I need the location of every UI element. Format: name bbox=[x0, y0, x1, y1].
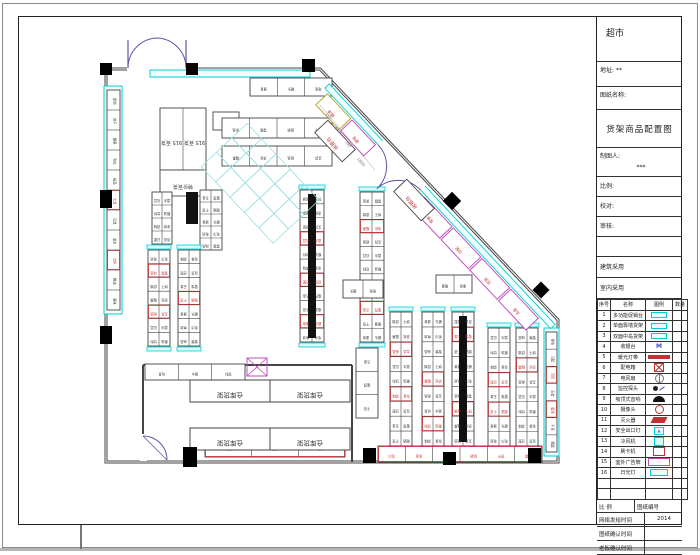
shelf-cell-label: 罐头 bbox=[465, 364, 472, 369]
shelf-cell-label: 毛巾 bbox=[161, 257, 167, 262]
shelf-cell-label: 饼干 bbox=[113, 118, 118, 125]
legend-cell bbox=[646, 331, 673, 342]
structural-column bbox=[100, 63, 112, 75]
legend-row: 9吸顶式音响 bbox=[598, 394, 688, 405]
floor-grid-cell bbox=[274, 199, 304, 229]
shelf-cell-label: 百货 bbox=[403, 409, 409, 414]
floor-grid-cell bbox=[230, 183, 260, 213]
shelf-cell-label: 促销 bbox=[113, 98, 118, 105]
shelf-cell-label: 百货 bbox=[501, 380, 507, 385]
shelf-cell-label: 日配 bbox=[180, 271, 187, 276]
legend-cell bbox=[598, 489, 611, 500]
legend-cell bbox=[673, 321, 688, 332]
shelf-cell-label: 蜜饯 bbox=[363, 383, 370, 388]
audit-field: 审核: bbox=[597, 217, 682, 237]
structural-column bbox=[443, 452, 456, 465]
floor-grid-cell bbox=[245, 168, 275, 198]
shelf-cell-label: 粮油 bbox=[164, 212, 170, 217]
shelf-cell-label: 雪糕 bbox=[259, 128, 266, 133]
shelf-cell-label: 饮料 bbox=[490, 350, 497, 355]
shelf-cell-label: 蜜饯 bbox=[551, 407, 556, 414]
shelf-cell-label: 饮料 bbox=[302, 252, 309, 257]
shelf-cell-label: 饼干 bbox=[465, 409, 472, 414]
legend-row bbox=[598, 478, 688, 489]
shelf-cell-label: 文具 bbox=[374, 240, 381, 245]
legend-cell bbox=[646, 478, 673, 489]
shelf-cell-label: 烟酒 bbox=[551, 441, 556, 448]
shelf-cell-label: 五金 bbox=[180, 284, 187, 289]
title-block: 超市 地址: ** 图纸名称: 货架商品配置图 制图人: *** 比例: 校对:… bbox=[596, 16, 682, 525]
shelf-cell-label: 电池 bbox=[314, 87, 321, 92]
shelf-cell-label: 调味 bbox=[302, 266, 309, 271]
end-cap bbox=[177, 347, 201, 351]
legend-cell: 双面中岛货架 bbox=[611, 331, 646, 342]
shelf-cell-label: 速食 bbox=[180, 312, 187, 317]
shelf-run: 糖果洗化纸品文具 bbox=[222, 146, 332, 166]
shelf-cell-label: 文具 bbox=[161, 312, 168, 317]
legend-cell: 13 bbox=[598, 436, 611, 447]
shelf-cell-label: 调味 bbox=[153, 225, 160, 230]
shelf-cell-label: 玩具 bbox=[153, 199, 160, 204]
shelf-cell-label: 玩具 bbox=[392, 364, 399, 369]
footer-cell bbox=[645, 527, 682, 540]
end-cap bbox=[299, 343, 325, 347]
shelf-cell-label: 毛巾 bbox=[191, 326, 197, 331]
legend-cell: M bbox=[646, 342, 673, 353]
legend-cell: 安全出口灯 bbox=[611, 426, 646, 437]
shelf-cell-label: 纸品 bbox=[288, 156, 294, 161]
shelf-cell-label: 酒水 bbox=[163, 199, 170, 204]
shelf-cell-label: 五金 bbox=[490, 395, 497, 400]
shelf-cell-label: 洗化 bbox=[403, 335, 410, 340]
legend-row: 16日光灯 bbox=[598, 468, 688, 479]
shelf-cell-label: 糖果 bbox=[232, 156, 239, 161]
shelf-cell-label: 电池 bbox=[369, 289, 376, 294]
shelf-cell-label: 百货 bbox=[465, 320, 471, 325]
legend-cell bbox=[673, 405, 688, 416]
shelf-cell-label: 玩具 bbox=[518, 395, 525, 400]
legend-cell: 配电箱 bbox=[611, 363, 646, 374]
shelf-cell-label: 促销 bbox=[454, 409, 461, 414]
storage-label: 仓库货架 bbox=[297, 391, 324, 400]
storage-label: 仓库货架 bbox=[217, 391, 244, 400]
legend-cell bbox=[611, 489, 646, 500]
end-cap bbox=[299, 185, 325, 189]
wall-unit bbox=[186, 192, 198, 224]
shelf-cell-label: 电池 bbox=[202, 232, 209, 237]
shelf-cell-label: 电池 bbox=[302, 335, 309, 340]
shelf-run-outline bbox=[145, 364, 245, 380]
shelf-cell-label: 速食 bbox=[362, 335, 369, 340]
legend-cell: 16 bbox=[598, 468, 611, 479]
legend-cell bbox=[673, 363, 688, 374]
shelf-run: 五金蜜饯干货烟酒速食罐头电池毛巾床品雪糕 bbox=[200, 190, 222, 250]
island-label: 特价百货 bbox=[173, 183, 193, 190]
shelf-cell-label: 促销 bbox=[424, 364, 431, 369]
shelf-cell-label: 五金 bbox=[392, 424, 399, 429]
shelf-cell-label: 烟酒 bbox=[441, 284, 448, 289]
shelf-run: 调味零食日配百货五金蜜饯干货烟酒速食罐头电池毛巾床品雪糕 bbox=[177, 245, 201, 351]
legend-cell bbox=[673, 436, 688, 447]
legend-cell: 8 bbox=[598, 384, 611, 395]
shelf-cell-label: 速食 bbox=[490, 424, 497, 429]
shelf-cell-label: 电池 bbox=[490, 439, 497, 444]
shelf-cell-label: 促销 bbox=[287, 128, 294, 133]
shelf-run: 罐头电池 bbox=[343, 280, 383, 298]
shelf-cell-label: 酒水 bbox=[403, 364, 410, 369]
shelf-cell-label: 干货 bbox=[551, 424, 556, 430]
shelf-cell-label: 烟酒 bbox=[213, 208, 220, 213]
shelf-cell-label: 促销 bbox=[150, 284, 157, 289]
legend-row: 2单面靠墙货架 bbox=[598, 321, 688, 332]
shelf-cell-label: 文具 bbox=[435, 394, 442, 399]
legend-cell: 摄像头 bbox=[611, 405, 646, 416]
floor-grid-cell bbox=[244, 198, 274, 228]
shelf-cell-label: 调味 bbox=[490, 365, 497, 370]
shelf-cell-label: 电池 bbox=[424, 335, 431, 340]
shelf-cell-label: 调味 bbox=[113, 298, 118, 305]
shelf-run: 玩具酒水饮料粮油调味零食日配百货五金蜜饯干货烟酒速食罐头电池毛巾 bbox=[487, 323, 511, 451]
legend-cell: 电风扇 bbox=[611, 373, 646, 384]
shelf-cell-label: 雪糕 bbox=[465, 394, 472, 399]
legend-cell bbox=[646, 363, 673, 374]
shelf-cell-label: 蜜饯 bbox=[403, 424, 410, 429]
legend-header-cell: 名称 bbox=[611, 300, 646, 311]
storage-label: 仓库货架 bbox=[217, 439, 244, 448]
shelf-cell-label: 饮料 bbox=[153, 212, 160, 217]
structural-column bbox=[100, 326, 112, 344]
legend-cell: 15 bbox=[598, 457, 611, 468]
legend-cell bbox=[646, 373, 673, 384]
shelf-cell-label: 玩具 bbox=[490, 336, 497, 341]
shelf-cell-label: 干货 bbox=[364, 407, 370, 412]
footer-row: 网络发给时间2014 bbox=[597, 513, 682, 527]
shelf-cell-label: 粮油 bbox=[435, 424, 441, 429]
shelf-cell-label: 酒水 bbox=[113, 238, 118, 245]
shelf-cell-label: 饼干 bbox=[374, 213, 381, 218]
shelf-cell-label: 促销 bbox=[392, 320, 399, 325]
shelf-cell-label: 五金 bbox=[551, 390, 556, 397]
shelf-cell-label: 纸品 bbox=[424, 394, 430, 399]
shelf-cell-label: 玩具 bbox=[158, 372, 165, 377]
shelf-cell-label: 五金 bbox=[302, 294, 309, 299]
shelf-cell-label: 蜜饯 bbox=[501, 395, 508, 400]
legend-cell bbox=[646, 394, 673, 405]
legend-cell bbox=[673, 394, 688, 405]
shelf-cell-label: 饼干 bbox=[403, 320, 410, 325]
shelf-cell-label: 烟酒 bbox=[501, 409, 508, 414]
drafter-value: *** bbox=[600, 164, 682, 171]
shelf-cell-label: 烟酒 bbox=[465, 349, 472, 354]
shelf-cell-label: 糖果 bbox=[454, 424, 461, 429]
shelf-cell-label: 罐头 bbox=[191, 312, 198, 317]
shelf-cell-label: 日配 bbox=[518, 439, 525, 444]
legend-cell: 日光灯 bbox=[611, 468, 646, 479]
shelf-cell-label: 洗化 bbox=[259, 156, 266, 161]
shelf-cell-label: 酒水 bbox=[435, 409, 442, 414]
legend-row bbox=[598, 489, 688, 500]
shelf-cell-label: 文具 bbox=[314, 225, 321, 230]
shelf-cell-label: 日配 bbox=[302, 280, 309, 285]
end-cap bbox=[389, 307, 413, 311]
shelf-cell-label: 糖果 bbox=[150, 298, 157, 303]
end-cap bbox=[147, 245, 171, 249]
shelf-cell-label: 百货 bbox=[164, 238, 170, 243]
shelf-run: 速食罐头电池 bbox=[250, 78, 332, 96]
blank-field bbox=[597, 237, 682, 257]
shelf-cell-label: 床品 bbox=[454, 394, 460, 399]
door-opening bbox=[140, 434, 147, 461]
shelf-cell-label: 零食 bbox=[403, 394, 410, 399]
shelf-cell-label: 速食 bbox=[459, 284, 466, 289]
shelf-cell-label: 促销 bbox=[518, 350, 525, 355]
shelf-cell-label: 雪糕 bbox=[435, 349, 442, 354]
floor-grid-cell bbox=[259, 213, 289, 243]
end-cap bbox=[421, 307, 445, 311]
shelf-cell-label: 纸品 bbox=[113, 178, 118, 184]
shelf-cell-label: 床品 bbox=[424, 349, 430, 354]
legend-cell: 吸顶式音响 bbox=[611, 394, 646, 405]
shelf-cell-label: 速食 bbox=[302, 321, 309, 326]
shelf-cell-label: 饮料 bbox=[224, 372, 231, 377]
legend-cell bbox=[673, 415, 688, 426]
shelf-cell-label: 纸品 bbox=[363, 240, 369, 245]
shelf-cell-label: 雪糕 bbox=[529, 336, 536, 341]
legend-cell: ▲ bbox=[646, 426, 673, 437]
shelf-cell-label: 蜜饯 bbox=[465, 335, 472, 340]
footer-row: 老板确认时间 bbox=[597, 541, 682, 555]
footer-cell: 网络发给时间 bbox=[597, 513, 645, 526]
shelf-cell-label: 糖果 bbox=[518, 365, 525, 370]
structural-column bbox=[302, 59, 315, 72]
shelf-cell-label: 酒水 bbox=[161, 326, 168, 331]
shelf-cell-label: 雪糕 bbox=[374, 199, 381, 204]
structural-column bbox=[183, 447, 197, 467]
scale-field: 比例: bbox=[597, 177, 682, 197]
shelf-cell-label: 罐头 bbox=[501, 424, 508, 429]
shelf-cell-label: 洗化 bbox=[113, 158, 118, 165]
shelf-cell-label: 零食 bbox=[191, 257, 198, 262]
shelf-cell-label: 酒水 bbox=[501, 336, 508, 341]
shelf-cell-label: 糖果 bbox=[424, 379, 431, 384]
footer-cell: 图纸确认时间 bbox=[597, 527, 645, 540]
legend-cell bbox=[646, 489, 673, 500]
legend-row: 15室外广告牌∷∷ bbox=[598, 457, 688, 468]
shelf-cell-label: 电池 bbox=[150, 257, 157, 262]
legend-cell: 收银台 bbox=[611, 342, 646, 353]
legend-header-cell: 序号 bbox=[598, 300, 611, 311]
shelf-run: 床品雪糕促销饼干糖果洗化纸品文具玩具酒水饮料粮油调味零食日配百货 bbox=[515, 323, 539, 451]
shelf-cell-label: 床品 bbox=[202, 244, 208, 249]
shelf-cell-label: 日配 bbox=[454, 320, 461, 325]
shelf-cell-label: 促销 bbox=[470, 454, 477, 459]
shelf-cell-label: 毛巾 bbox=[465, 379, 471, 384]
legend-cell bbox=[673, 352, 688, 363]
shelf-run: 床品雪糕促销饼干 bbox=[222, 118, 332, 138]
shelf-cell-label: 零食 bbox=[163, 225, 170, 230]
shelf-cell-label: 粮油 bbox=[529, 409, 535, 414]
shelf-cell-label: 雪糕 bbox=[161, 271, 168, 276]
shelf-cell-label: 百货 bbox=[191, 271, 197, 276]
end-cap bbox=[359, 343, 385, 347]
shelf-run: 玩具酒水饮料粮油调味零食日配百货 bbox=[152, 192, 172, 244]
legend-cell bbox=[673, 447, 688, 458]
shelf-cell-label: 玩具 bbox=[302, 239, 309, 244]
shelf-cell-label: 饮料 bbox=[518, 409, 525, 414]
legend-cell: 4 bbox=[598, 342, 611, 353]
shelf-cell-label: 调味 bbox=[392, 394, 399, 399]
legend-cell bbox=[646, 405, 673, 416]
shelf-cell-label: 调味 bbox=[424, 439, 431, 444]
shelf-run: 电池毛巾床品雪糕促销饼干糖果洗化纸品文具玩具酒水饮料粮油 bbox=[147, 245, 171, 351]
storage-label: 仓库货架 bbox=[297, 439, 324, 448]
shelf-cell-label: 纸品 bbox=[150, 312, 156, 317]
shelf-cell-label: 毛巾 bbox=[315, 335, 321, 340]
shelf-cell-label: 罐头 bbox=[374, 335, 381, 340]
legend-cell: 7 bbox=[598, 373, 611, 384]
structural-column bbox=[186, 63, 198, 75]
legend-cell: 3 bbox=[598, 331, 611, 342]
structural-column bbox=[528, 448, 541, 463]
legend-row: 14刷卡机 bbox=[598, 447, 688, 458]
shelf-cell-label: 蜜饯 bbox=[191, 284, 198, 289]
shelf-cell-label: 雪糕 bbox=[213, 244, 220, 249]
shelf-cell-label: 粮油 bbox=[161, 339, 167, 344]
shelf-cell-label: 罐头 bbox=[314, 321, 321, 326]
legend-cell bbox=[673, 478, 688, 489]
legend-row: 11灭火器 bbox=[598, 415, 688, 426]
floor-plan: 促销饼干糖果洗化纸品文具玩具酒水饮料粮油调味零食日配百货五金蜜饯干货烟酒915 … bbox=[0, 0, 700, 555]
shelf-cell-label: 床品 bbox=[518, 336, 524, 341]
shelf-cell-label: 蜜饯 bbox=[374, 308, 381, 313]
shelf-cell-label: 日配 bbox=[490, 380, 497, 385]
legend-cell bbox=[673, 468, 688, 479]
shelf-run: 五金蜜饯干货 bbox=[356, 348, 378, 418]
legend-row: 7电风扇 bbox=[598, 373, 688, 384]
footer-number-label: 图纸编号 bbox=[635, 500, 682, 512]
wall-shelf-band bbox=[150, 70, 310, 77]
shelf-run: 毛巾床品雪糕促销饼干糖果 bbox=[378, 446, 542, 462]
legend-cell: 2 bbox=[598, 321, 611, 332]
shelf-cell-label: 调味 bbox=[180, 257, 187, 262]
footer-scale-label: 比 例 bbox=[597, 500, 635, 512]
footer-cell: 2014 bbox=[645, 513, 682, 526]
shelf-cell-label: 粮油 bbox=[403, 379, 409, 384]
legend-header-cell: 数量 bbox=[673, 300, 688, 311]
shelf-cell-label: 五金 bbox=[202, 196, 209, 201]
legend-cell bbox=[646, 436, 673, 447]
shelf-cell-label: 促销 bbox=[302, 197, 309, 202]
shelf-cell-label: 玩具 bbox=[362, 254, 369, 259]
legend-cell bbox=[673, 373, 688, 384]
legend-cell bbox=[673, 426, 688, 437]
legend-row: 8监控探头 bbox=[598, 384, 688, 395]
legend-cell: 灭火器 bbox=[611, 415, 646, 426]
shelf-cell-label: 文具 bbox=[465, 439, 472, 444]
island-label: 915 百货 bbox=[161, 139, 182, 146]
shelf-cell-label: 百货 bbox=[529, 439, 535, 444]
shelf-cell-label: 速食 bbox=[424, 320, 431, 325]
shelf-run: 速食罐头电池毛巾床品雪糕促销饼干糖果洗化纸品文具玩具酒水饮料粮油调味零食 bbox=[421, 307, 445, 451]
shelf-cell-label: 饮料 bbox=[362, 267, 369, 272]
footer-cell bbox=[645, 541, 682, 554]
shelf-cell-label: 文具 bbox=[529, 380, 536, 385]
shelf-run: 915 百货915 百货 bbox=[160, 108, 206, 170]
shelf-cell-label: 洗化 bbox=[314, 211, 321, 216]
interior-use-field: 室内采用 bbox=[597, 278, 682, 299]
shelf-cell-label: 文具 bbox=[113, 198, 118, 205]
legend-cell bbox=[598, 478, 611, 489]
shelf-cell-label: 纸品 bbox=[454, 439, 460, 444]
shelf-cell-label: 饮料 bbox=[150, 339, 157, 344]
shelf-cell-label: 饮料 bbox=[113, 258, 118, 265]
legend-cell: 冷风机 bbox=[611, 436, 646, 447]
shelf-cell-label: 糖果 bbox=[392, 335, 399, 340]
shelf-cell-label: 毛巾 bbox=[213, 232, 219, 237]
shelf-cell-label: 毛巾 bbox=[435, 335, 441, 340]
shelf-cell-label: 罐头 bbox=[287, 87, 294, 92]
legend-cell bbox=[673, 331, 688, 342]
shelf-cell-label: 洗化 bbox=[374, 226, 381, 231]
shelf-cell-label: 毛巾 bbox=[501, 439, 507, 444]
shelf-cell-label: 纸品 bbox=[303, 225, 309, 230]
shelf-cell-label: 速食 bbox=[202, 220, 209, 225]
end-cap bbox=[177, 245, 201, 249]
structural-column bbox=[100, 190, 112, 208]
shelf-cell-label: 纸品 bbox=[392, 349, 398, 354]
legend-cell bbox=[673, 342, 688, 353]
legend-cell bbox=[646, 352, 673, 363]
end-cap bbox=[359, 187, 385, 191]
shelf-run: 玩具酒水饮料 bbox=[145, 364, 245, 380]
shelf-cell-label: 粮油 bbox=[315, 252, 321, 257]
drafter-label: 制图人: bbox=[600, 153, 620, 160]
shelf-cell-label: 糖果 bbox=[113, 138, 118, 145]
shelf-run: 烟酒速食 bbox=[436, 275, 472, 293]
store-name: 超市 bbox=[597, 16, 682, 62]
legend-cell: 单面靠墙货架 bbox=[611, 321, 646, 332]
shelf-cell-label: 玩具 bbox=[424, 409, 431, 414]
legend-cell bbox=[673, 489, 688, 500]
shelf-run: 床品雪糕促销饼干糖果洗化纸品文具玩具酒水饮料粮油调味零食日配百货五金蜜饯干货烟酒… bbox=[359, 187, 385, 347]
end-cap bbox=[147, 347, 171, 351]
shelf-cell-label: 糖果 bbox=[362, 226, 369, 231]
structural-column bbox=[363, 448, 376, 463]
legend-cell: 6 bbox=[598, 363, 611, 374]
legend-cell bbox=[646, 468, 673, 479]
legend-cell bbox=[646, 384, 673, 395]
drawing-sheet: 促销饼干糖果洗化纸品文具玩具酒水饮料粮油调味零食日配百货五金蜜饯干货烟酒915 … bbox=[0, 0, 700, 555]
legend-row: 5暖光灯带 bbox=[598, 352, 688, 363]
checkout-outline bbox=[394, 179, 435, 220]
legend-table: 序号名称图例数量 1多功能促销台2单面靠墙货架3双面中岛货架4收银台M5暖光灯带… bbox=[597, 299, 688, 500]
legend-cell: 12 bbox=[598, 426, 611, 437]
shelf-cell-label: 零食 bbox=[551, 339, 556, 346]
proof-field: 校对: bbox=[597, 197, 682, 217]
legend-header-cell: 图例 bbox=[646, 300, 673, 311]
shelf-cell-label: 速食 bbox=[454, 364, 461, 369]
shelf-cell-label: 五金 bbox=[362, 308, 369, 313]
shelf-cell-label: 干货 bbox=[363, 322, 369, 327]
legend-cell: 5 bbox=[598, 352, 611, 363]
legend-cell bbox=[611, 478, 646, 489]
shelf-cell-label: 干货 bbox=[202, 208, 208, 213]
shelf-cell-label: 罐头 bbox=[435, 320, 442, 325]
shelf-cell-label: 饼干 bbox=[435, 364, 442, 369]
legend-cell: ∷∷ bbox=[646, 457, 673, 468]
shelf-cell-label: 干货 bbox=[180, 298, 186, 303]
footer-cell: 老板确认时间 bbox=[597, 541, 645, 554]
